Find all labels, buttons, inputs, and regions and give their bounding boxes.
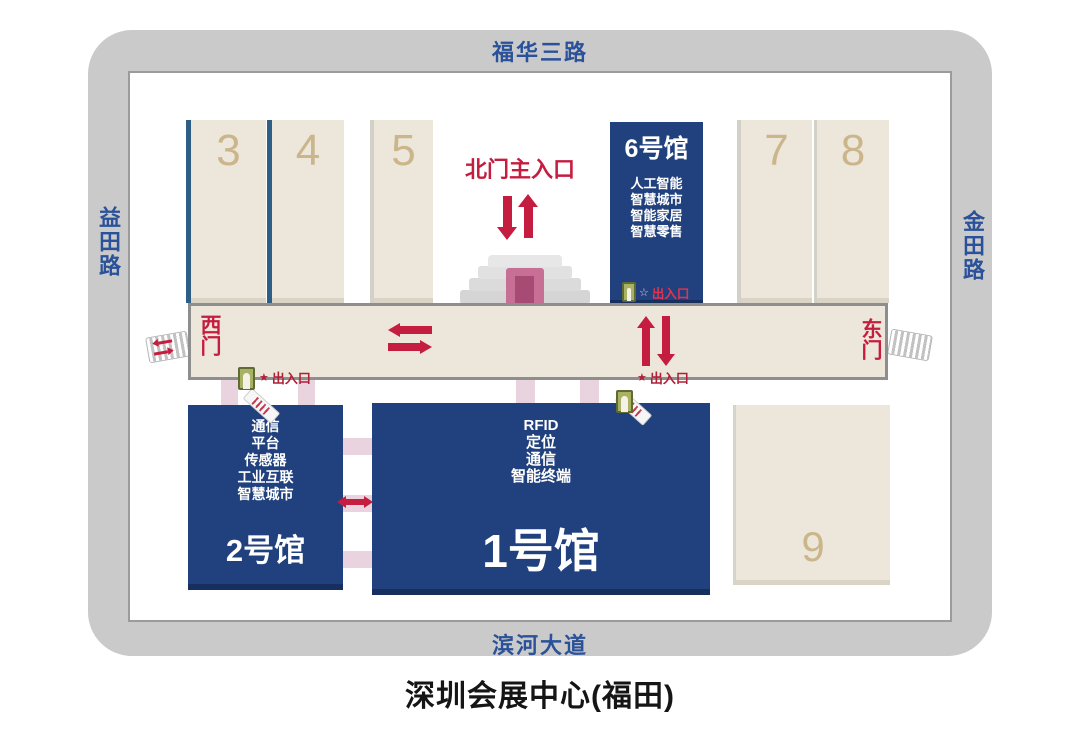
door-icon (622, 282, 636, 302)
hall-4-number: 4 (272, 126, 344, 176)
hall-6: 6号馆 人工智能 智慧城市 智能家居 智慧零售 ☆ 出入口 (610, 122, 703, 306)
star-icon: ☆ (639, 286, 649, 299)
road-label-west: 益田路 (88, 206, 128, 278)
hall-6-name: 6号馆 (610, 129, 703, 165)
hall-5: 5 (370, 120, 433, 303)
venue-title: 深圳会展中心(福田) (88, 671, 992, 715)
hall-6-tag: 智慧零售 (610, 224, 703, 240)
connector (516, 380, 535, 403)
hall-9: 9 (733, 405, 890, 585)
up-arrow-icon (518, 194, 538, 238)
hall-1-tag: 通信 (372, 451, 710, 468)
road-label-south: 滨河大道 (88, 628, 992, 660)
hall-6-tag: 智慧城市 (610, 192, 703, 208)
entrance-exit-label: 出入口 (652, 283, 690, 302)
hall-1-tag: 智能终端 (372, 468, 710, 485)
hall-2-tag: 传感器 (188, 452, 343, 469)
entrance-exit-label: 出入口 (650, 368, 689, 387)
hall-2-tags: 通信 平台 传感器 工业互联 智慧城市 (188, 418, 343, 503)
door-icon (238, 367, 255, 390)
hall-7-number: 7 (741, 126, 812, 176)
down-arrow-icon (657, 316, 675, 366)
road-label-north: 福华三路 (88, 35, 992, 67)
entrance-door-icon (506, 268, 544, 305)
hall-3-number: 3 (191, 126, 266, 176)
road-label-east: 金田路 (952, 210, 992, 282)
hall-7: 7 (737, 120, 812, 303)
hall-1: RFID 定位 通信 智能终端 1号馆 (372, 403, 710, 595)
door-icon (616, 390, 633, 413)
two-way-mini-arrows-icon (152, 336, 175, 357)
connector (221, 380, 238, 405)
entrance-marker-west: ★ 出入口 (259, 368, 311, 387)
right-arrow-icon (388, 340, 432, 354)
left-arrow-icon (388, 323, 432, 337)
connector (343, 551, 372, 568)
star-icon: ★ (259, 371, 269, 384)
hall-1-name: 1号馆 (372, 515, 710, 581)
hall-1-tag: 定位 (372, 434, 710, 451)
hall-1-tags: RFID 定位 通信 智能终端 (372, 417, 710, 485)
hall-9-number: 9 (736, 523, 890, 571)
venue-map: 福华三路 滨河大道 益田路 金田路 3 4 5 7 8 6号馆 人工智能 智慧城… (0, 0, 1080, 729)
hall-6-tag: 智能家居 (610, 208, 703, 224)
hall-6-tags: 人工智能 智慧城市 智能家居 智慧零售 (610, 176, 703, 240)
hall-2-tag: 智慧城市 (188, 486, 343, 503)
hall-2-tag: 平台 (188, 435, 343, 452)
two-way-arrow-icon (337, 496, 373, 508)
hall-6-tag: 人工智能 (610, 176, 703, 192)
down-arrow-icon (497, 196, 517, 240)
connector (580, 380, 599, 403)
hall-5-number: 5 (374, 126, 433, 176)
hall-2: 通信 平台 传感器 工业互联 智慧城市 2号馆 (188, 405, 343, 590)
north-gate-label: 北门主入口 (450, 152, 590, 184)
hall-1-tag: RFID (372, 417, 710, 434)
west-gate-label: 西门 (197, 314, 221, 370)
hall-2-name: 2号馆 (188, 525, 343, 570)
hall-8: 8 (814, 120, 889, 303)
hall-2-tag: 工业互联 (188, 469, 343, 486)
hall-3: 3 (186, 120, 266, 303)
east-gate-label: 东门 (858, 318, 882, 374)
entrance-marker-east: ★ 出入口 (637, 368, 689, 387)
hall-2-tag: 通信 (188, 418, 343, 435)
hall-6-entrance-marker: ☆ 出入口 (622, 282, 689, 302)
star-icon: ★ (637, 371, 647, 384)
connector (343, 438, 372, 455)
up-arrow-icon (637, 316, 655, 366)
hall-4: 4 (267, 120, 344, 303)
entrance-exit-label: 出入口 (272, 368, 311, 387)
hall-8-number: 8 (817, 126, 889, 176)
